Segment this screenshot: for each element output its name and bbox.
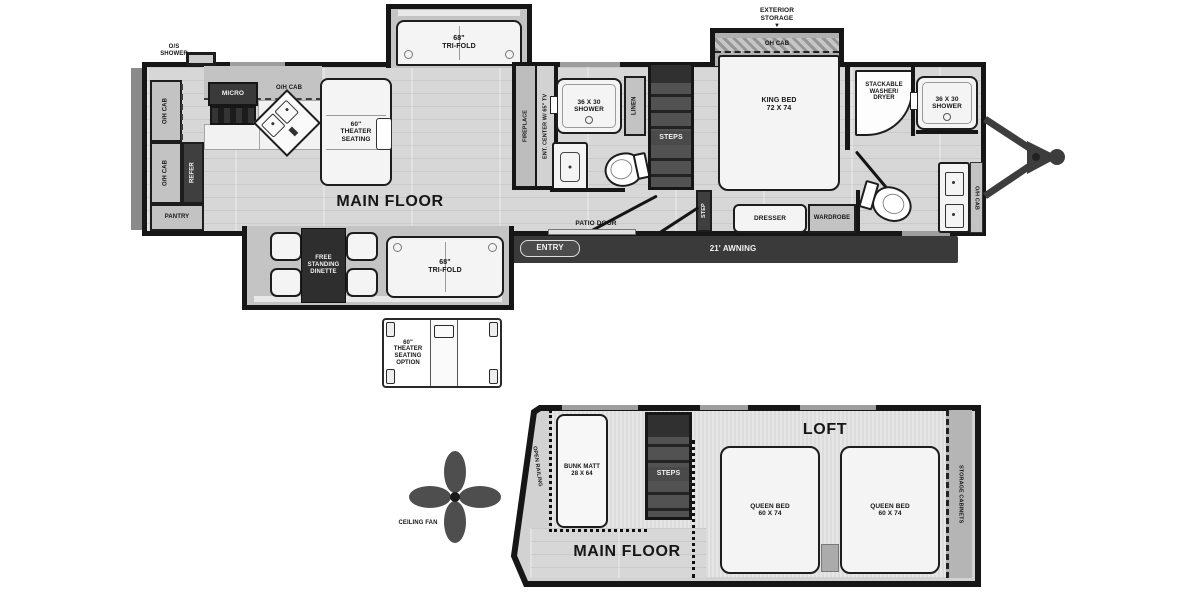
kitchen-counter bbox=[204, 124, 260, 150]
patio-door-label: PATIO DOOR bbox=[566, 219, 626, 229]
dinette-chair bbox=[346, 232, 378, 261]
dinette-table: FREE STANDING DINETTE bbox=[301, 228, 346, 303]
theater-option-label: 60" THEATER SEATING OPTION bbox=[386, 320, 430, 386]
tri-fold-sofa-bottom: 68" TRI-FOLD bbox=[386, 236, 504, 298]
main-floor-label: MAIN FLOOR bbox=[330, 192, 450, 212]
oh-cab-front: O/H CAB bbox=[970, 162, 983, 233]
nightstand bbox=[821, 544, 839, 572]
exterior-storage-label: EXTERIOR STORAGE bbox=[742, 6, 812, 23]
cooktop bbox=[210, 106, 256, 125]
shower-mid-label: 36 X 30 SHOWER bbox=[558, 80, 620, 132]
exterior-storage-arrow: ▼ bbox=[762, 22, 792, 30]
shower-mid: 36 X 30 SHOWER bbox=[556, 78, 622, 134]
refrigerator: REFER bbox=[182, 142, 204, 204]
awning-bar: ENTRY 21' AWNING bbox=[508, 236, 958, 263]
shower-valve bbox=[550, 96, 558, 114]
staircase: STEPS bbox=[648, 62, 694, 190]
microwave: MICRO bbox=[208, 82, 258, 106]
dinette-chair bbox=[270, 232, 302, 261]
storage-cabinets: STORAGE CABINETS bbox=[946, 410, 972, 578]
washer-dryer-label: STACKABLE WASHER/ DRYER bbox=[857, 72, 911, 134]
slide-end-trim bbox=[398, 10, 520, 16]
queen-bed-right: QUEEN BED 60 X 74 bbox=[840, 446, 940, 574]
bath-vanity bbox=[552, 142, 588, 192]
dinette-chair bbox=[270, 268, 302, 297]
window-segment bbox=[700, 405, 748, 410]
tri-fold-top-label: 68" TRI-FOLD bbox=[398, 22, 520, 64]
king-bed-label: KING BED 72 X 74 bbox=[720, 57, 838, 189]
loft-title: LOFT bbox=[788, 420, 862, 440]
loft-steps-label: STEPS bbox=[648, 467, 689, 481]
oh-cabinet-rear-upper: O/H CAB bbox=[150, 80, 182, 142]
wardrobe: WARDROBE bbox=[808, 204, 856, 233]
oh-cab-bed: OH CAB bbox=[715, 38, 839, 53]
entry-step: STEP bbox=[696, 190, 712, 232]
ceiling-fan-icon bbox=[408, 450, 502, 544]
front-bath-wall bbox=[916, 130, 978, 134]
shower-front: 36 X 30 SHOWER bbox=[916, 76, 978, 130]
double-sink-vanity bbox=[938, 162, 970, 233]
queen-bed-right-label: QUEEN BED 60 X 74 bbox=[842, 448, 938, 572]
window-segment bbox=[800, 405, 876, 410]
shower-front-label: 36 X 30 SHOWER bbox=[918, 78, 976, 128]
steps-label: STEPS bbox=[651, 131, 691, 145]
rv-floorplan: 68" TRI-FOLD O/S SHOWER O/H CAB O/H CAB … bbox=[0, 0, 1200, 600]
queen-bed-left-label: QUEEN BED 60 X 74 bbox=[722, 448, 818, 572]
bath-wall bbox=[550, 188, 625, 192]
linen-cabinet: LINEN bbox=[624, 76, 646, 136]
tri-fold-bottom-label: 68" TRI-FOLD bbox=[388, 238, 502, 296]
fireplace: FIREPLACE bbox=[516, 66, 535, 186]
window-segment bbox=[560, 62, 620, 67]
loft-main-floor-label: MAIN FLOOR bbox=[568, 542, 686, 562]
bunk-matt: BUNK MATT 28 X 64 bbox=[556, 414, 608, 528]
awning-label: 21' AWNING bbox=[508, 236, 958, 263]
tri-fold-sofa-top: 68" TRI-FOLD bbox=[396, 20, 522, 66]
washer-dryer: STACKABLE WASHER/ DRYER bbox=[855, 70, 913, 136]
counter-dashed-edge bbox=[181, 84, 183, 140]
bunk-matt-label: BUNK MATT 28 X 64 bbox=[558, 416, 606, 526]
king-bed: KING BED 72 X 74 bbox=[718, 55, 840, 191]
pantry: PANTRY bbox=[150, 204, 204, 231]
dinette-label: FREE STANDING DINETTE bbox=[302, 229, 345, 302]
queen-bed-left: QUEEN BED 60 X 74 bbox=[720, 446, 820, 574]
loft-rail-dotted bbox=[692, 440, 695, 578]
oh-cabinet-rear-lower: O/H CAB bbox=[150, 142, 182, 204]
bedroom-wall bbox=[845, 62, 850, 150]
loft-staircase: STEPS bbox=[645, 412, 692, 520]
hitch bbox=[983, 110, 1069, 205]
theater-seating: 60" THEATER SEATING bbox=[320, 78, 392, 186]
dresser: DRESSER bbox=[733, 204, 807, 233]
shower-valve bbox=[910, 92, 918, 110]
theater-seating-label: 60" THEATER SEATING bbox=[322, 80, 390, 184]
os-shower-label: O/S SHOWER bbox=[146, 42, 202, 60]
patio-door-sill bbox=[548, 229, 636, 235]
ceiling-fan-label: CEILING FAN bbox=[390, 518, 446, 528]
dinette-chair bbox=[346, 268, 378, 297]
theater-seating-option: 60" THEATER SEATING OPTION bbox=[382, 318, 502, 388]
